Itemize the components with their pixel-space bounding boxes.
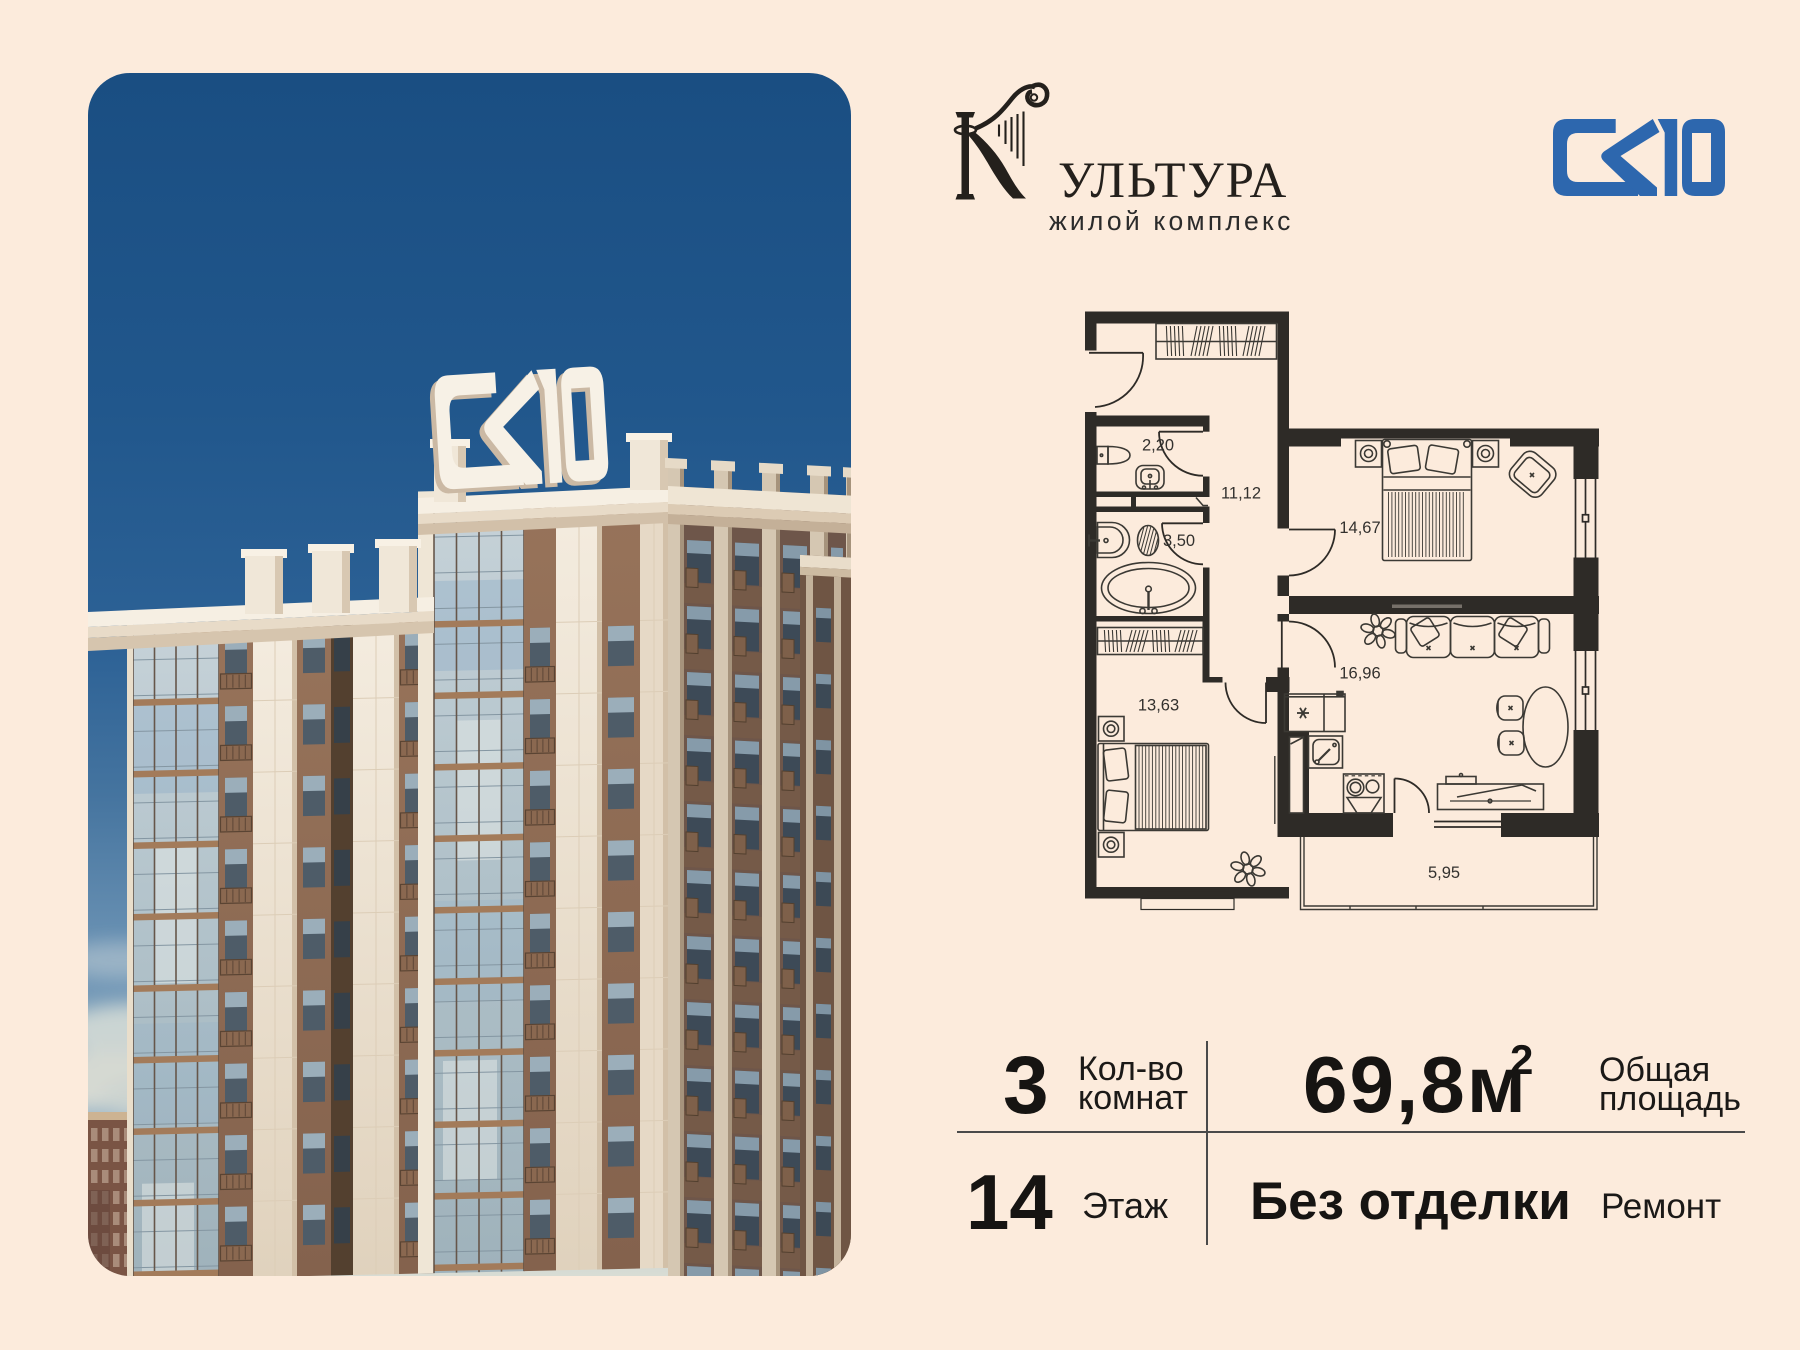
svg-text:2,20: 2,20 — [1142, 437, 1174, 455]
svg-text:Этаж: Этаж — [1082, 1185, 1168, 1226]
svg-text:Ремонт: Ремонт — [1601, 1187, 1721, 1226]
svg-text:11,12: 11,12 — [1221, 485, 1261, 503]
svg-text:3,50: 3,50 — [1163, 532, 1195, 550]
svg-text:69,8м: 69,8м — [1303, 1040, 1528, 1129]
svg-text:Без отделки: Без отделки — [1250, 1172, 1571, 1231]
svg-text:14: 14 — [966, 1158, 1053, 1246]
svg-text:14,67: 14,67 — [1339, 519, 1380, 537]
svg-text:жилой комплекс: жилой комплекс — [1049, 206, 1294, 236]
svg-text:УЛЬТУРА: УЛЬТУРА — [1058, 153, 1288, 209]
svg-text:16,96: 16,96 — [1339, 665, 1380, 683]
svg-text:13,63: 13,63 — [1138, 697, 1179, 715]
svg-text:комнат: комнат — [1078, 1079, 1188, 1117]
svg-text:площадь: площадь — [1599, 1080, 1741, 1118]
svg-text:3: 3 — [1003, 1040, 1049, 1131]
svg-text:2: 2 — [1510, 1036, 1533, 1083]
svg-text:5,95: 5,95 — [1428, 864, 1460, 882]
